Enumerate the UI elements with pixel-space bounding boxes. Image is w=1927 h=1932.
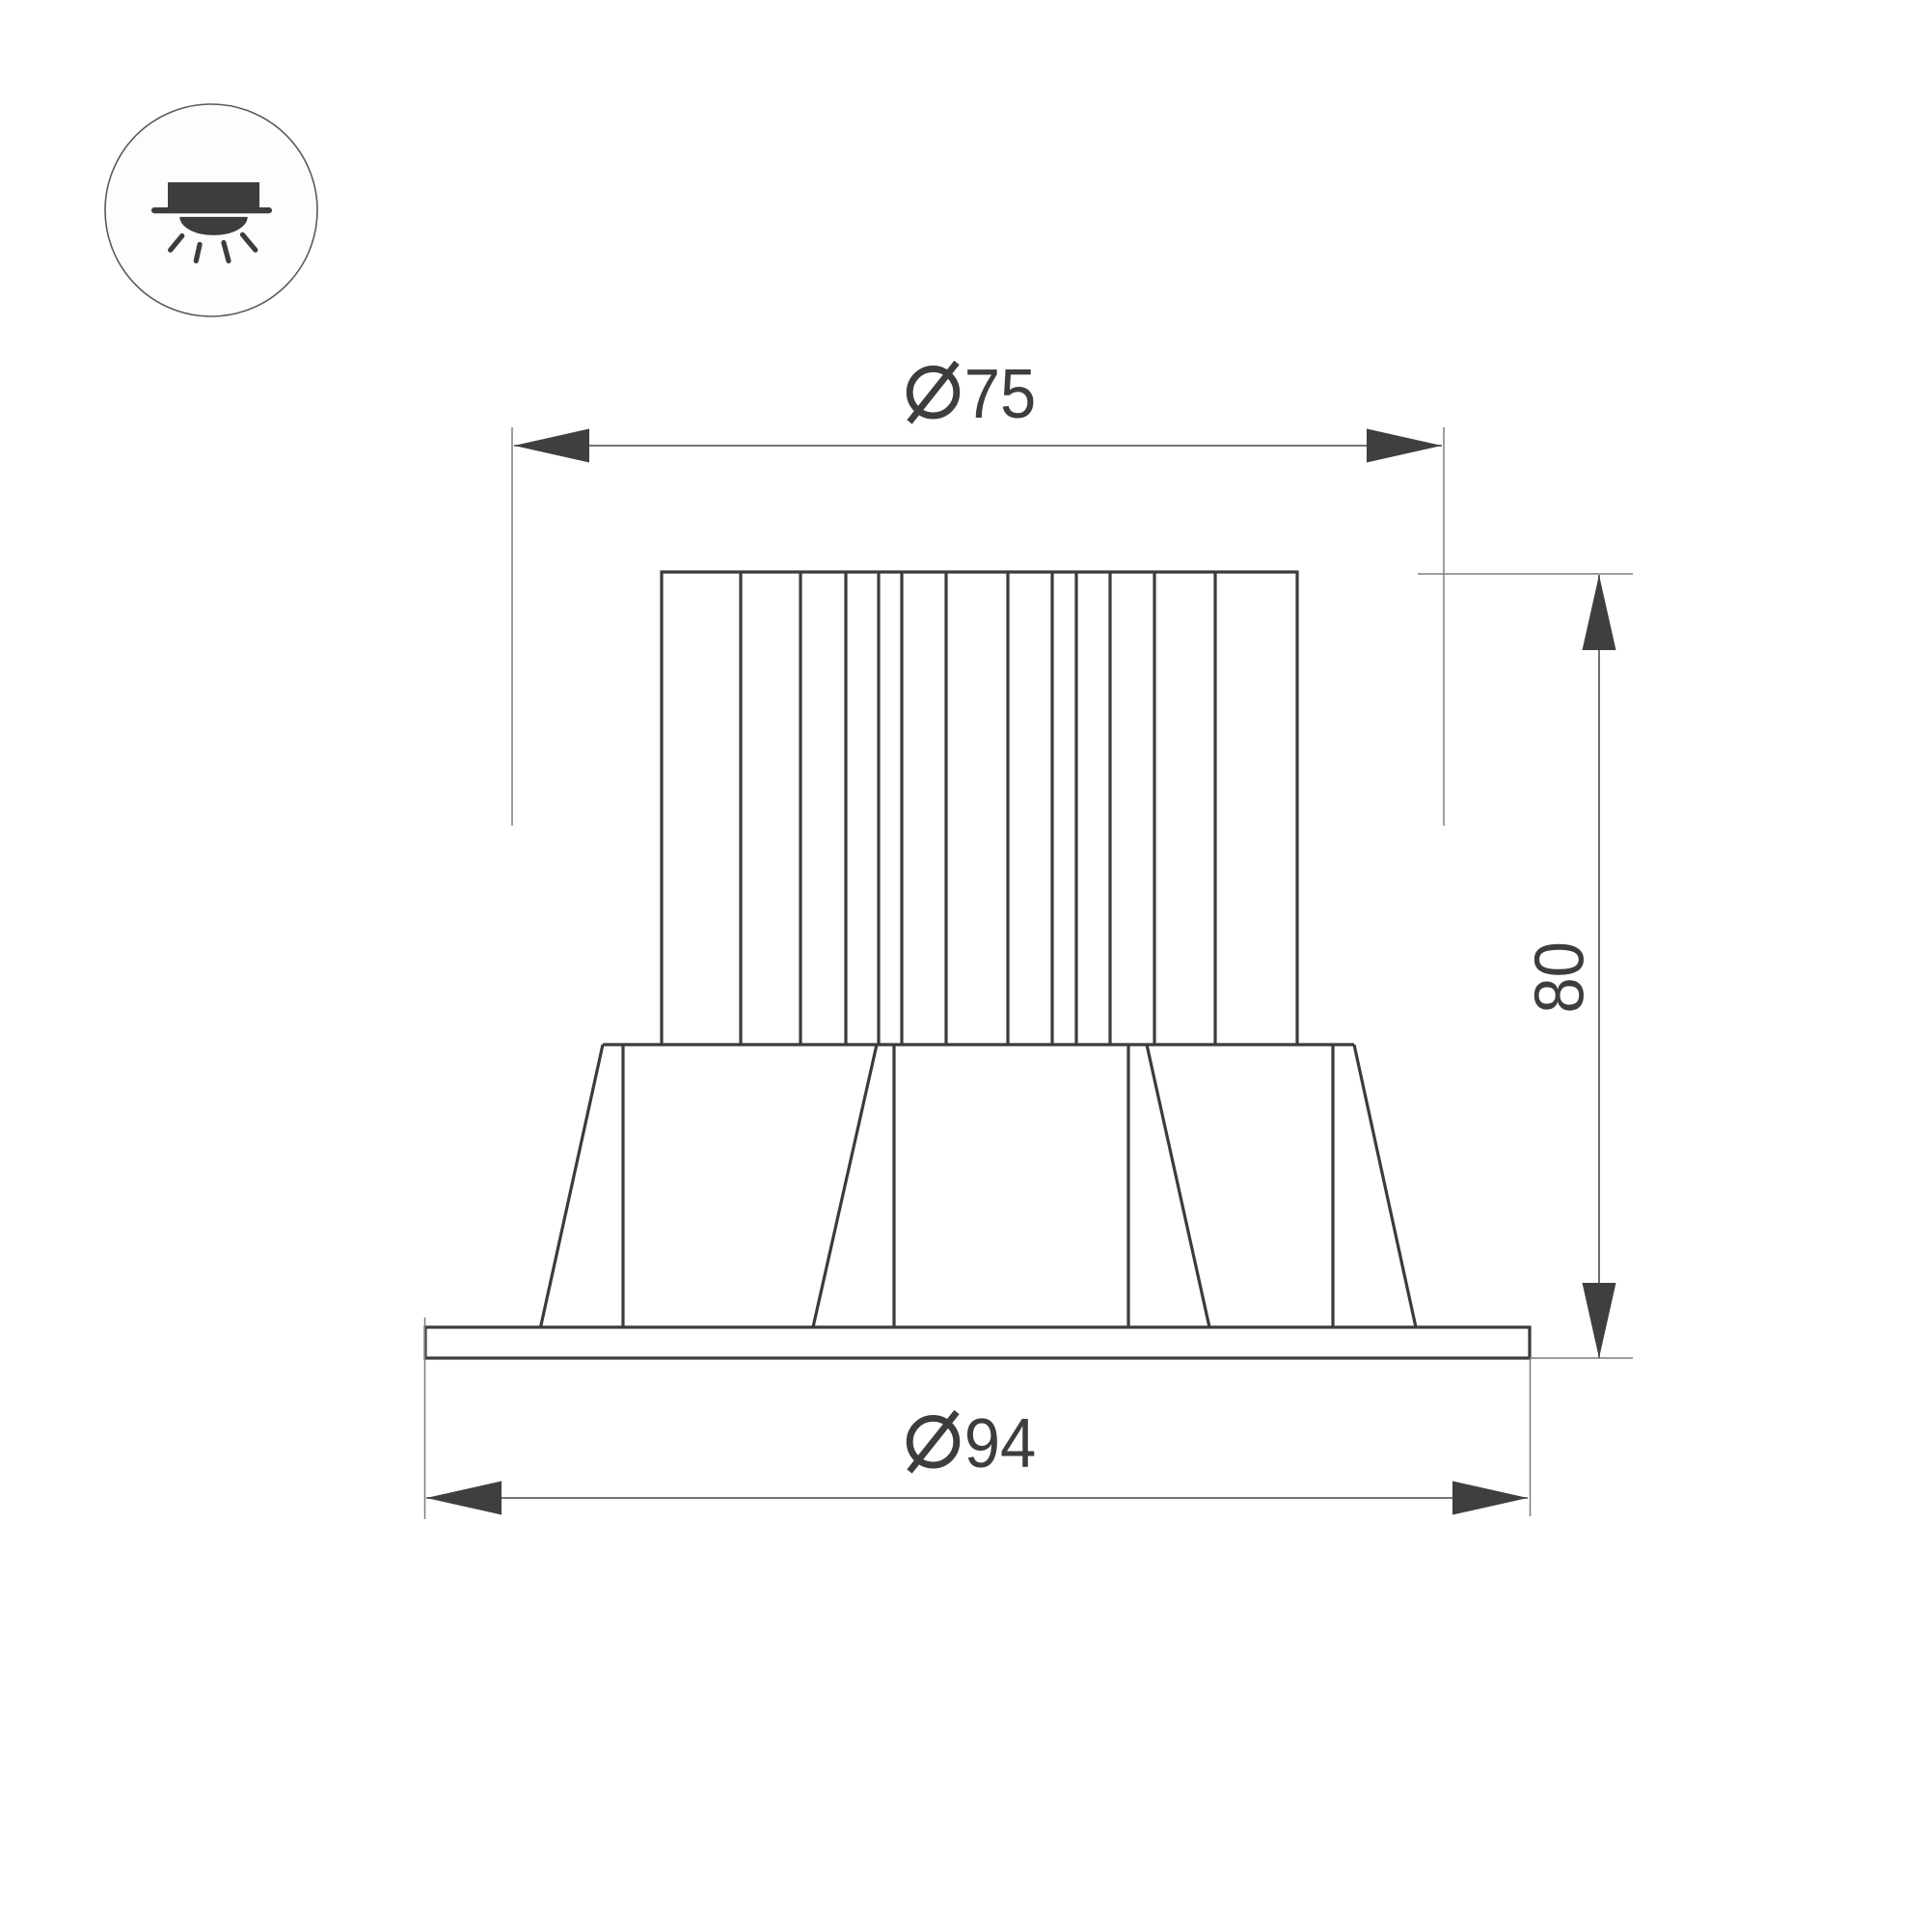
svg-text:75: 75 — [964, 355, 1036, 433]
svg-text:94: 94 — [964, 1404, 1036, 1483]
svg-text:80: 80 — [1520, 941, 1598, 1013]
